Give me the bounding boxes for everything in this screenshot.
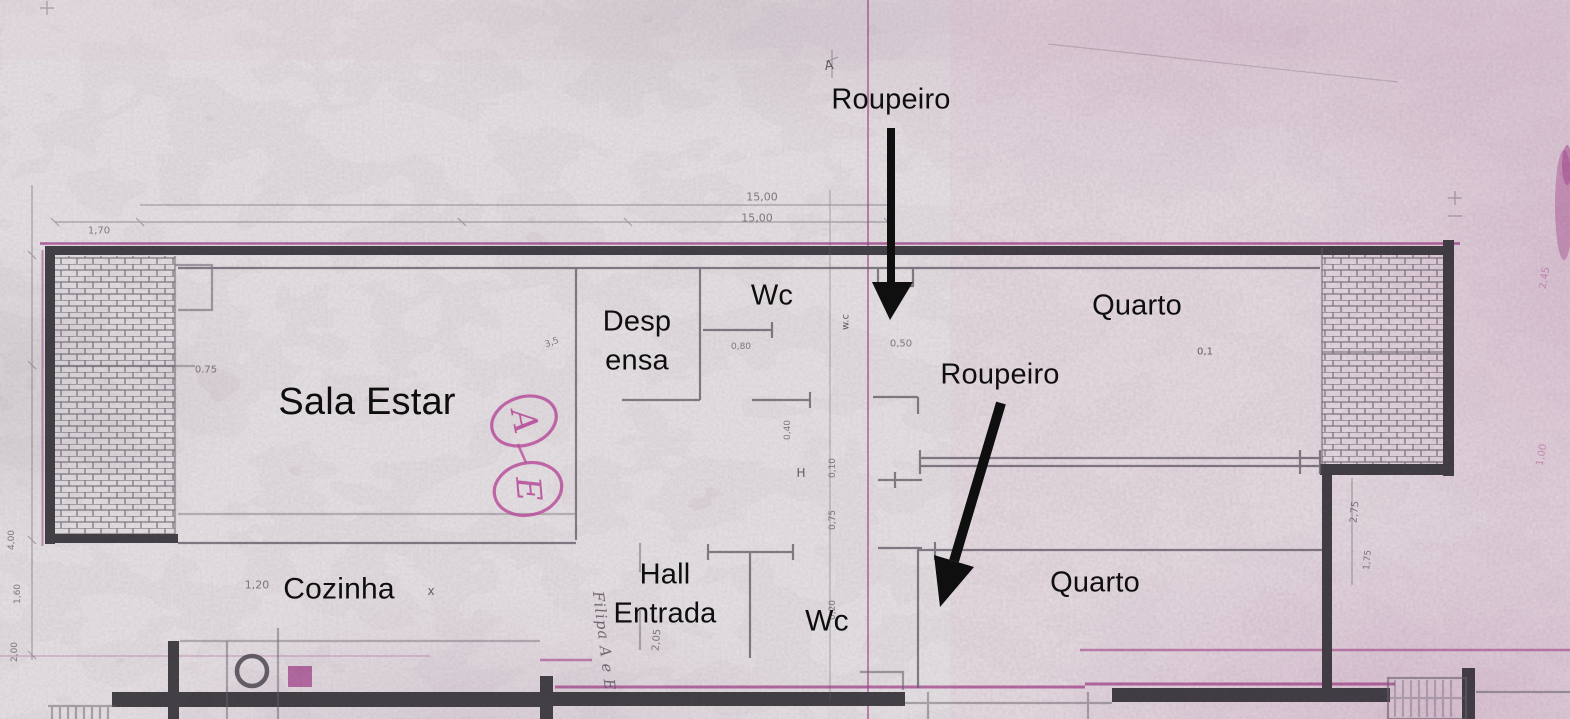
room-label-sala-estar: Sala Estar xyxy=(278,377,455,429)
room-label-wc-bottom: Wc xyxy=(805,602,849,643)
annotation-overlay: RoupeiroWcDespensaQuartoSala EstarRoupei… xyxy=(0,0,1570,719)
room-labels-layer: RoupeiroWcDespensaQuartoSala EstarRoupei… xyxy=(0,0,1570,719)
room-label-cozinha: Cozinha xyxy=(283,570,394,611)
room-label-despensa: Despensa xyxy=(603,303,672,382)
room-label-hall-entrada: HallEntrada xyxy=(614,556,717,635)
room-label-roupeiro-mid: Roupeiro xyxy=(940,355,1059,394)
scanned-floor-plan: AE 15,0015,001,700,500,800.753,51,200,10… xyxy=(0,0,1570,719)
room-label-quarto-bottom: Quarto xyxy=(1050,563,1140,602)
room-label-quarto-top: Quarto xyxy=(1092,286,1182,325)
room-label-wc-top: Wc xyxy=(751,276,793,315)
room-label-roupeiro-top: Roupeiro xyxy=(831,80,950,119)
